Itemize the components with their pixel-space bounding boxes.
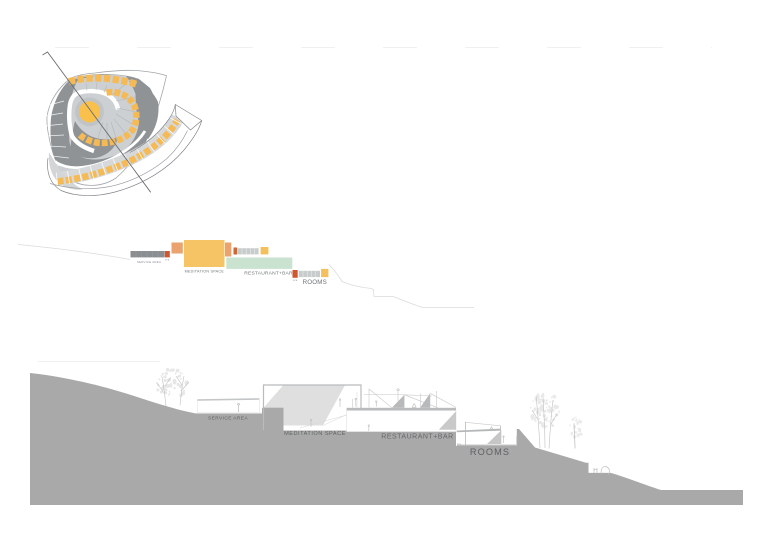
svg-text:SPA: SPA	[457, 444, 462, 447]
svg-text:ROOMS: ROOMS	[303, 279, 327, 286]
svg-text:RESTAURANT+BAR: RESTAURANT+BAR	[244, 270, 293, 276]
svg-text:SPA: SPA	[293, 279, 298, 282]
svg-text:RESTAURANT+BAR: RESTAURANT+BAR	[381, 433, 453, 440]
svg-text:SPA: SPA	[165, 259, 170, 262]
svg-text:SERVICE AREA: SERVICE AREA	[208, 415, 248, 421]
svg-text:ROOMS: ROOMS	[470, 447, 510, 457]
svg-text:SERVICE AREA: SERVICE AREA	[137, 260, 161, 264]
svg-text:MEDITATION SPACE: MEDITATION SPACE	[185, 269, 225, 273]
svg-text:SPA: SPA	[255, 414, 260, 417]
svg-text:MEDITATION SPACE: MEDITATION SPACE	[284, 431, 346, 437]
